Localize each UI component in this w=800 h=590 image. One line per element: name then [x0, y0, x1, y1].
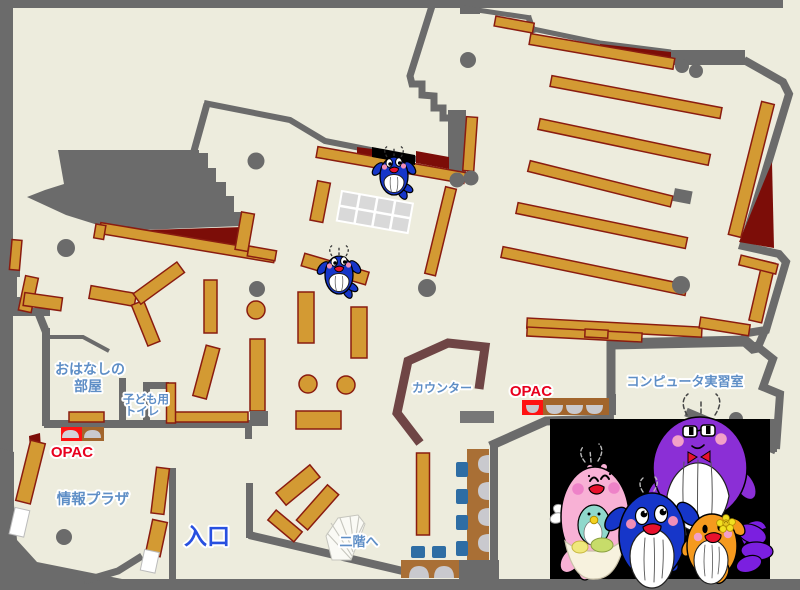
svg-text:二階へ: 二階へ: [339, 534, 378, 549]
svg-text:OPAC: OPAC: [510, 383, 552, 400]
svg-text:入口: 入口: [184, 523, 230, 549]
svg-text:OPAC: OPAC: [51, 444, 93, 461]
svg-text:カウンター: カウンター: [412, 381, 472, 395]
svg-text:部屋: 部屋: [74, 378, 102, 394]
svg-text:情報プラザ: 情報プラザ: [57, 490, 130, 508]
svg-text:子ども用: 子ども用: [123, 393, 169, 406]
svg-text:おはなしの: おはなしの: [55, 361, 125, 377]
svg-text:コンピュータ実習室: コンピュータ実習室: [626, 374, 743, 389]
svg-text:トイレ: トイレ: [125, 405, 160, 418]
